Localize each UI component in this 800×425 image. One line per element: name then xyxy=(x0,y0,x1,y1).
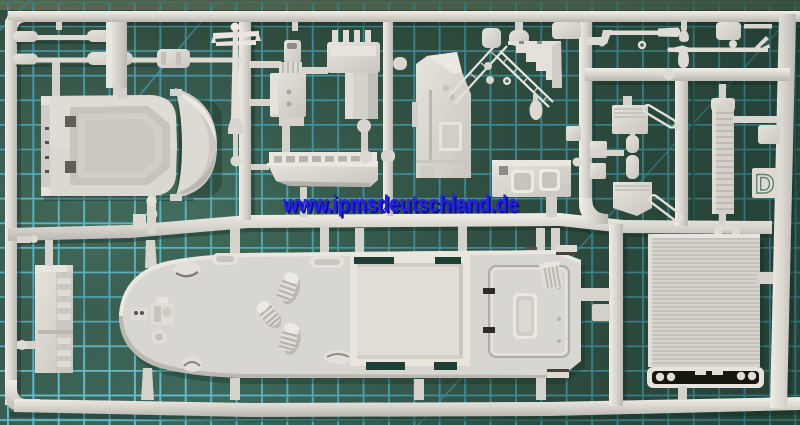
svg-text:D: D xyxy=(755,169,775,199)
svg-text:www.ipmsdeutschland.de: www.ipmsdeutschland.de xyxy=(282,191,518,217)
